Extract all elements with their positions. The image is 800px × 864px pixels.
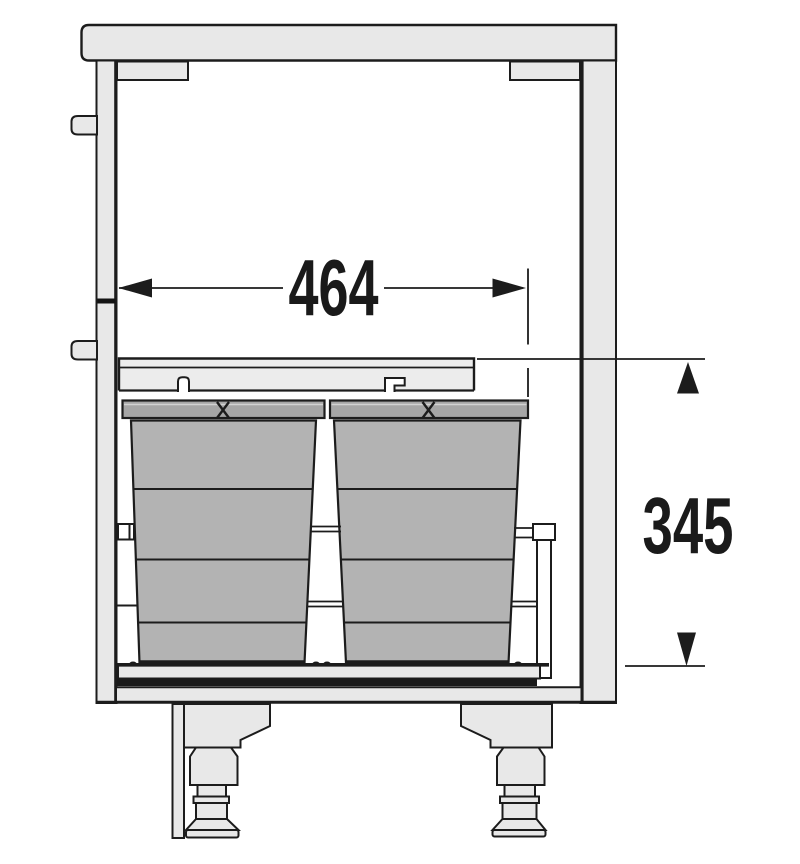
- svg-text:464: 464: [289, 243, 379, 332]
- svg-text:345: 345: [643, 481, 734, 570]
